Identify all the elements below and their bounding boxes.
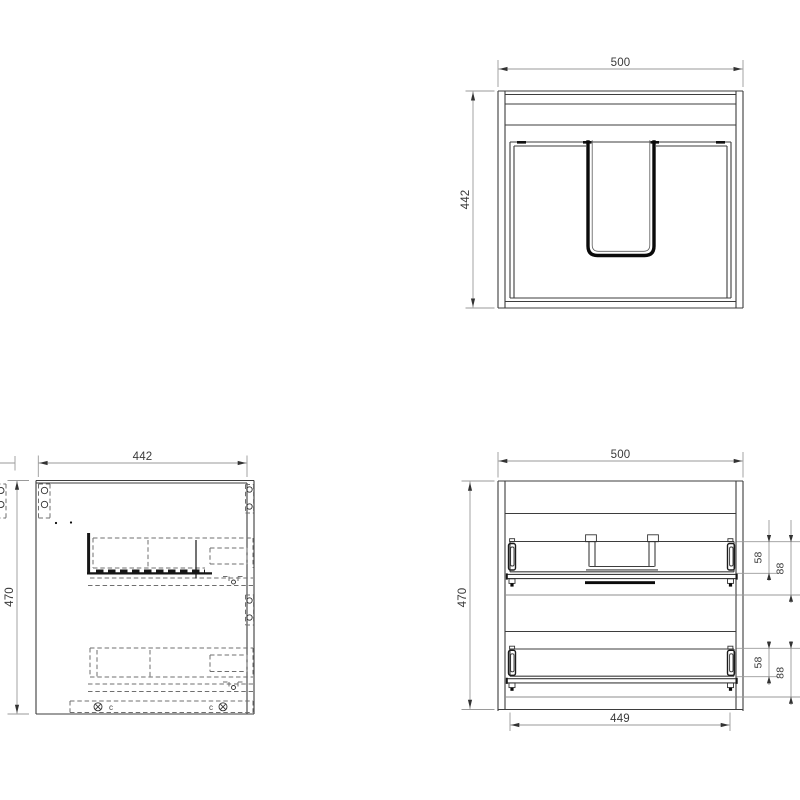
arrow-up [15, 481, 19, 490]
arrow-left [499, 67, 508, 71]
top-view-carcass [498, 91, 743, 308]
extension-lines [737, 520, 800, 603]
screw-icon [247, 598, 252, 603]
side-view-hidden-hardware: c c [0, 484, 254, 713]
screw-icon [0, 488, 4, 494]
screw-icon [41, 487, 47, 493]
arrow-down [15, 705, 19, 714]
screw-icon [41, 501, 47, 507]
dim-label-upper-side: 58 [753, 551, 765, 563]
slide-clip-left-slot [511, 547, 514, 566]
dim-label-lower-side: 58 [753, 656, 765, 668]
side-view-carcass [36, 481, 254, 715]
arrow-right [734, 459, 743, 463]
screw-cross-lines [221, 704, 226, 709]
arrow-right [238, 461, 247, 465]
slide-clip-right-slot [730, 654, 733, 672]
arrow-right [734, 67, 743, 71]
arrow-left [39, 461, 48, 465]
siphon-recess-shadow [585, 581, 655, 584]
front-view-dimension-height: 470 [457, 481, 495, 710]
top-view-dimension-width: 500 [498, 57, 743, 87]
drill-dot [70, 521, 72, 523]
marker-label-right: c [209, 703, 213, 712]
screw-icon [247, 487, 252, 492]
siphon-post-cap-right [648, 535, 659, 542]
side-view-dimension-height: 470 [4, 481, 29, 715]
lower-drawer-box [506, 646, 738, 691]
clip-foot-left [509, 683, 515, 688]
arrow-left [499, 459, 508, 463]
drill-dot [55, 522, 57, 524]
arrow [789, 642, 793, 649]
marker-label-left: c [109, 703, 113, 712]
arrow [767, 535, 771, 542]
dimension-lines [0, 456, 247, 478]
top-view-dimension-depth: 442 [460, 91, 495, 308]
arrow [767, 642, 771, 649]
front-view: 500 470 449 58 88 [457, 449, 800, 731]
extension-lines [737, 641, 800, 705]
dim-label-upper-total: 88 [775, 562, 787, 574]
upper-drawer-dimensions: 58 88 [737, 520, 800, 603]
clip-foot-right [728, 683, 734, 688]
arrow-right [721, 723, 730, 727]
arrow-down [471, 299, 475, 308]
arrow [789, 535, 793, 542]
siphon-cutout-inner [592, 140, 650, 251]
lower-drawer-dimensions: 58 88 [737, 641, 800, 705]
screw-icon [247, 504, 252, 509]
slide-clip-right-slot [730, 547, 733, 566]
arrow [789, 595, 793, 602]
arrow-left [511, 723, 520, 727]
screw-icon [0, 502, 4, 508]
arrow [789, 697, 793, 704]
clip-foot-pin-right [729, 583, 732, 586]
side-view-dimension-depth: 442 [0, 451, 247, 477]
front-view-dimension-bottom-width: 449 [510, 713, 730, 732]
slide-end-stop [232, 686, 236, 690]
screw-cross-lines [96, 704, 101, 709]
drawer-box-outline [506, 542, 738, 579]
dim-label-front-height: 470 [457, 588, 469, 608]
clip-foot-pin-left [510, 688, 513, 691]
arrow-up [468, 482, 472, 491]
dim-label-top-depth: 442 [460, 190, 472, 210]
dim-label-front-width: 500 [611, 449, 631, 461]
arrow [767, 676, 771, 683]
arrow-down [468, 700, 472, 709]
slide-end-stop [232, 580, 236, 584]
bottom-fixing-strip: c c [94, 703, 227, 712]
screw-icon [247, 615, 252, 620]
panel-lines [505, 595, 736, 697]
clip-foot-pin-left [510, 583, 513, 586]
dim-label-front-bottom-width: 449 [610, 713, 630, 725]
upper-drawer-box [506, 535, 738, 587]
side-view: c c 442 470 [0, 451, 254, 714]
carcass-outline [36, 481, 254, 715]
arrow [767, 573, 771, 580]
dim-label-lower-total: 88 [775, 667, 787, 679]
hidden-lines [0, 484, 254, 713]
slide-clip-left-slot [511, 654, 514, 672]
drawer-box-outline [506, 649, 738, 683]
dim-label-side-height: 470 [4, 587, 16, 607]
top-view: 500 442 [460, 57, 743, 308]
front-view-dimension-width: 500 [498, 449, 743, 478]
arrow-up [471, 92, 475, 101]
technical-drawing: 500 442 [0, 0, 800, 800]
drawing-canvas: { "views": { "top": { "dim_width": "500"… [0, 0, 800, 800]
dim-label-top-width: 500 [611, 57, 631, 69]
clip-foot-pin-right [729, 688, 732, 691]
clip-foot-left [509, 579, 515, 584]
carcass-outline [498, 91, 743, 308]
clip-foot-right [728, 579, 734, 584]
siphon-post-cap-left [586, 535, 597, 542]
siphon-cutout [588, 140, 654, 255]
dim-label-side-depth: 442 [133, 451, 153, 463]
